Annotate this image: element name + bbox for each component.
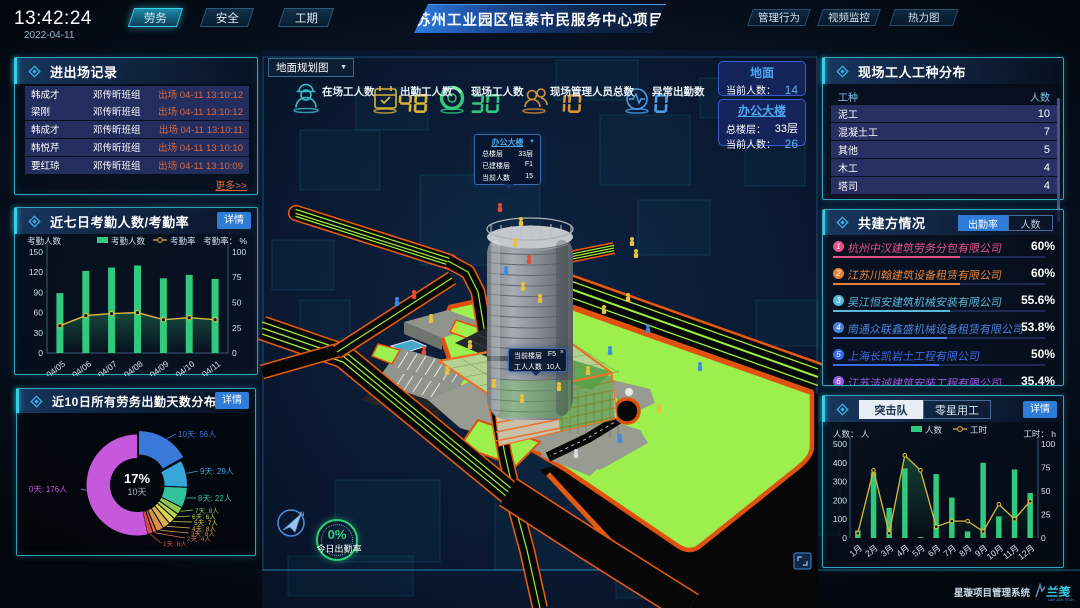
svg-text:100: 100 <box>833 514 847 524</box>
svg-text:7月: 7月 <box>941 543 958 559</box>
svg-text:75: 75 <box>1041 463 1051 473</box>
svg-text:考勤率： %: 考勤率： % <box>203 236 247 246</box>
svg-text:LAN JIAN TECH: LAN JIAN TECH <box>1048 598 1074 602</box>
svg-text:04/07: 04/07 <box>96 359 119 376</box>
svg-text:04/08: 04/08 <box>122 359 145 376</box>
svg-text:300: 300 <box>833 477 847 487</box>
svg-text:75: 75 <box>232 272 242 282</box>
svg-text:N: N <box>300 512 304 518</box>
svg-text:12月: 12月 <box>1016 543 1036 562</box>
svg-text:30: 30 <box>34 328 44 338</box>
svg-text:6月: 6月 <box>926 543 943 559</box>
svg-text:1月: 1月 <box>847 543 864 559</box>
svg-text:04/09: 04/09 <box>148 359 171 376</box>
svg-text:工时: 工时 <box>970 425 988 435</box>
svg-text:5月: 5月 <box>910 543 927 559</box>
svg-text:0天: 176人: 0天: 176人 <box>29 485 67 494</box>
svg-text:150: 150 <box>29 247 43 257</box>
svg-text:兰笺: 兰笺 <box>1045 584 1071 599</box>
svg-text:100: 100 <box>232 247 246 257</box>
svg-text:50: 50 <box>1041 486 1051 496</box>
svg-text:考勤人数: 考勤人数 <box>111 236 146 246</box>
svg-text:60: 60 <box>34 308 44 318</box>
svg-text:25: 25 <box>1041 510 1051 520</box>
svg-text:人数: 人数 <box>925 425 943 435</box>
svg-text:25: 25 <box>232 323 242 333</box>
svg-text:9天: 29人: 9天: 29人 <box>200 467 234 476</box>
svg-text:200: 200 <box>833 495 847 505</box>
svg-text:0: 0 <box>1041 533 1046 543</box>
svg-text:0: 0 <box>38 348 43 358</box>
svg-text:120: 120 <box>29 267 43 277</box>
svg-text:人数： 人: 人数： 人 <box>833 429 870 439</box>
svg-text:0: 0 <box>232 348 237 358</box>
svg-text:8月: 8月 <box>957 543 974 559</box>
svg-text:3月: 3月 <box>879 543 896 559</box>
svg-text:考勤率: 考勤率 <box>170 236 196 246</box>
svg-text:04/11: 04/11 <box>200 359 223 376</box>
svg-text:04/05: 04/05 <box>44 359 67 376</box>
svg-text:17%: 17% <box>124 471 150 486</box>
svg-text:1天: 6人: 1天: 6人 <box>163 540 187 548</box>
svg-text:50: 50 <box>232 298 242 308</box>
svg-text:04/06: 04/06 <box>70 359 93 376</box>
svg-text:500: 500 <box>833 439 847 449</box>
svg-text:2月: 2月 <box>863 543 880 559</box>
svg-text:0: 0 <box>842 533 847 543</box>
svg-text:10天: 10天 <box>127 487 146 497</box>
svg-text:10天: 56人: 10天: 56人 <box>178 430 216 439</box>
svg-text:100: 100 <box>1041 439 1055 449</box>
svg-text:4月: 4月 <box>894 543 911 559</box>
svg-text:8天: 22人: 8天: 22人 <box>198 494 232 503</box>
svg-text:工时： h: 工时： h <box>1023 429 1056 439</box>
svg-text:400: 400 <box>833 458 847 468</box>
svg-text:90: 90 <box>34 287 44 297</box>
svg-text:04/10: 04/10 <box>174 359 197 376</box>
svg-text:考勤人数: 考勤人数 <box>27 236 62 246</box>
svg-text:2天: 4人: 2天: 4人 <box>187 535 211 543</box>
